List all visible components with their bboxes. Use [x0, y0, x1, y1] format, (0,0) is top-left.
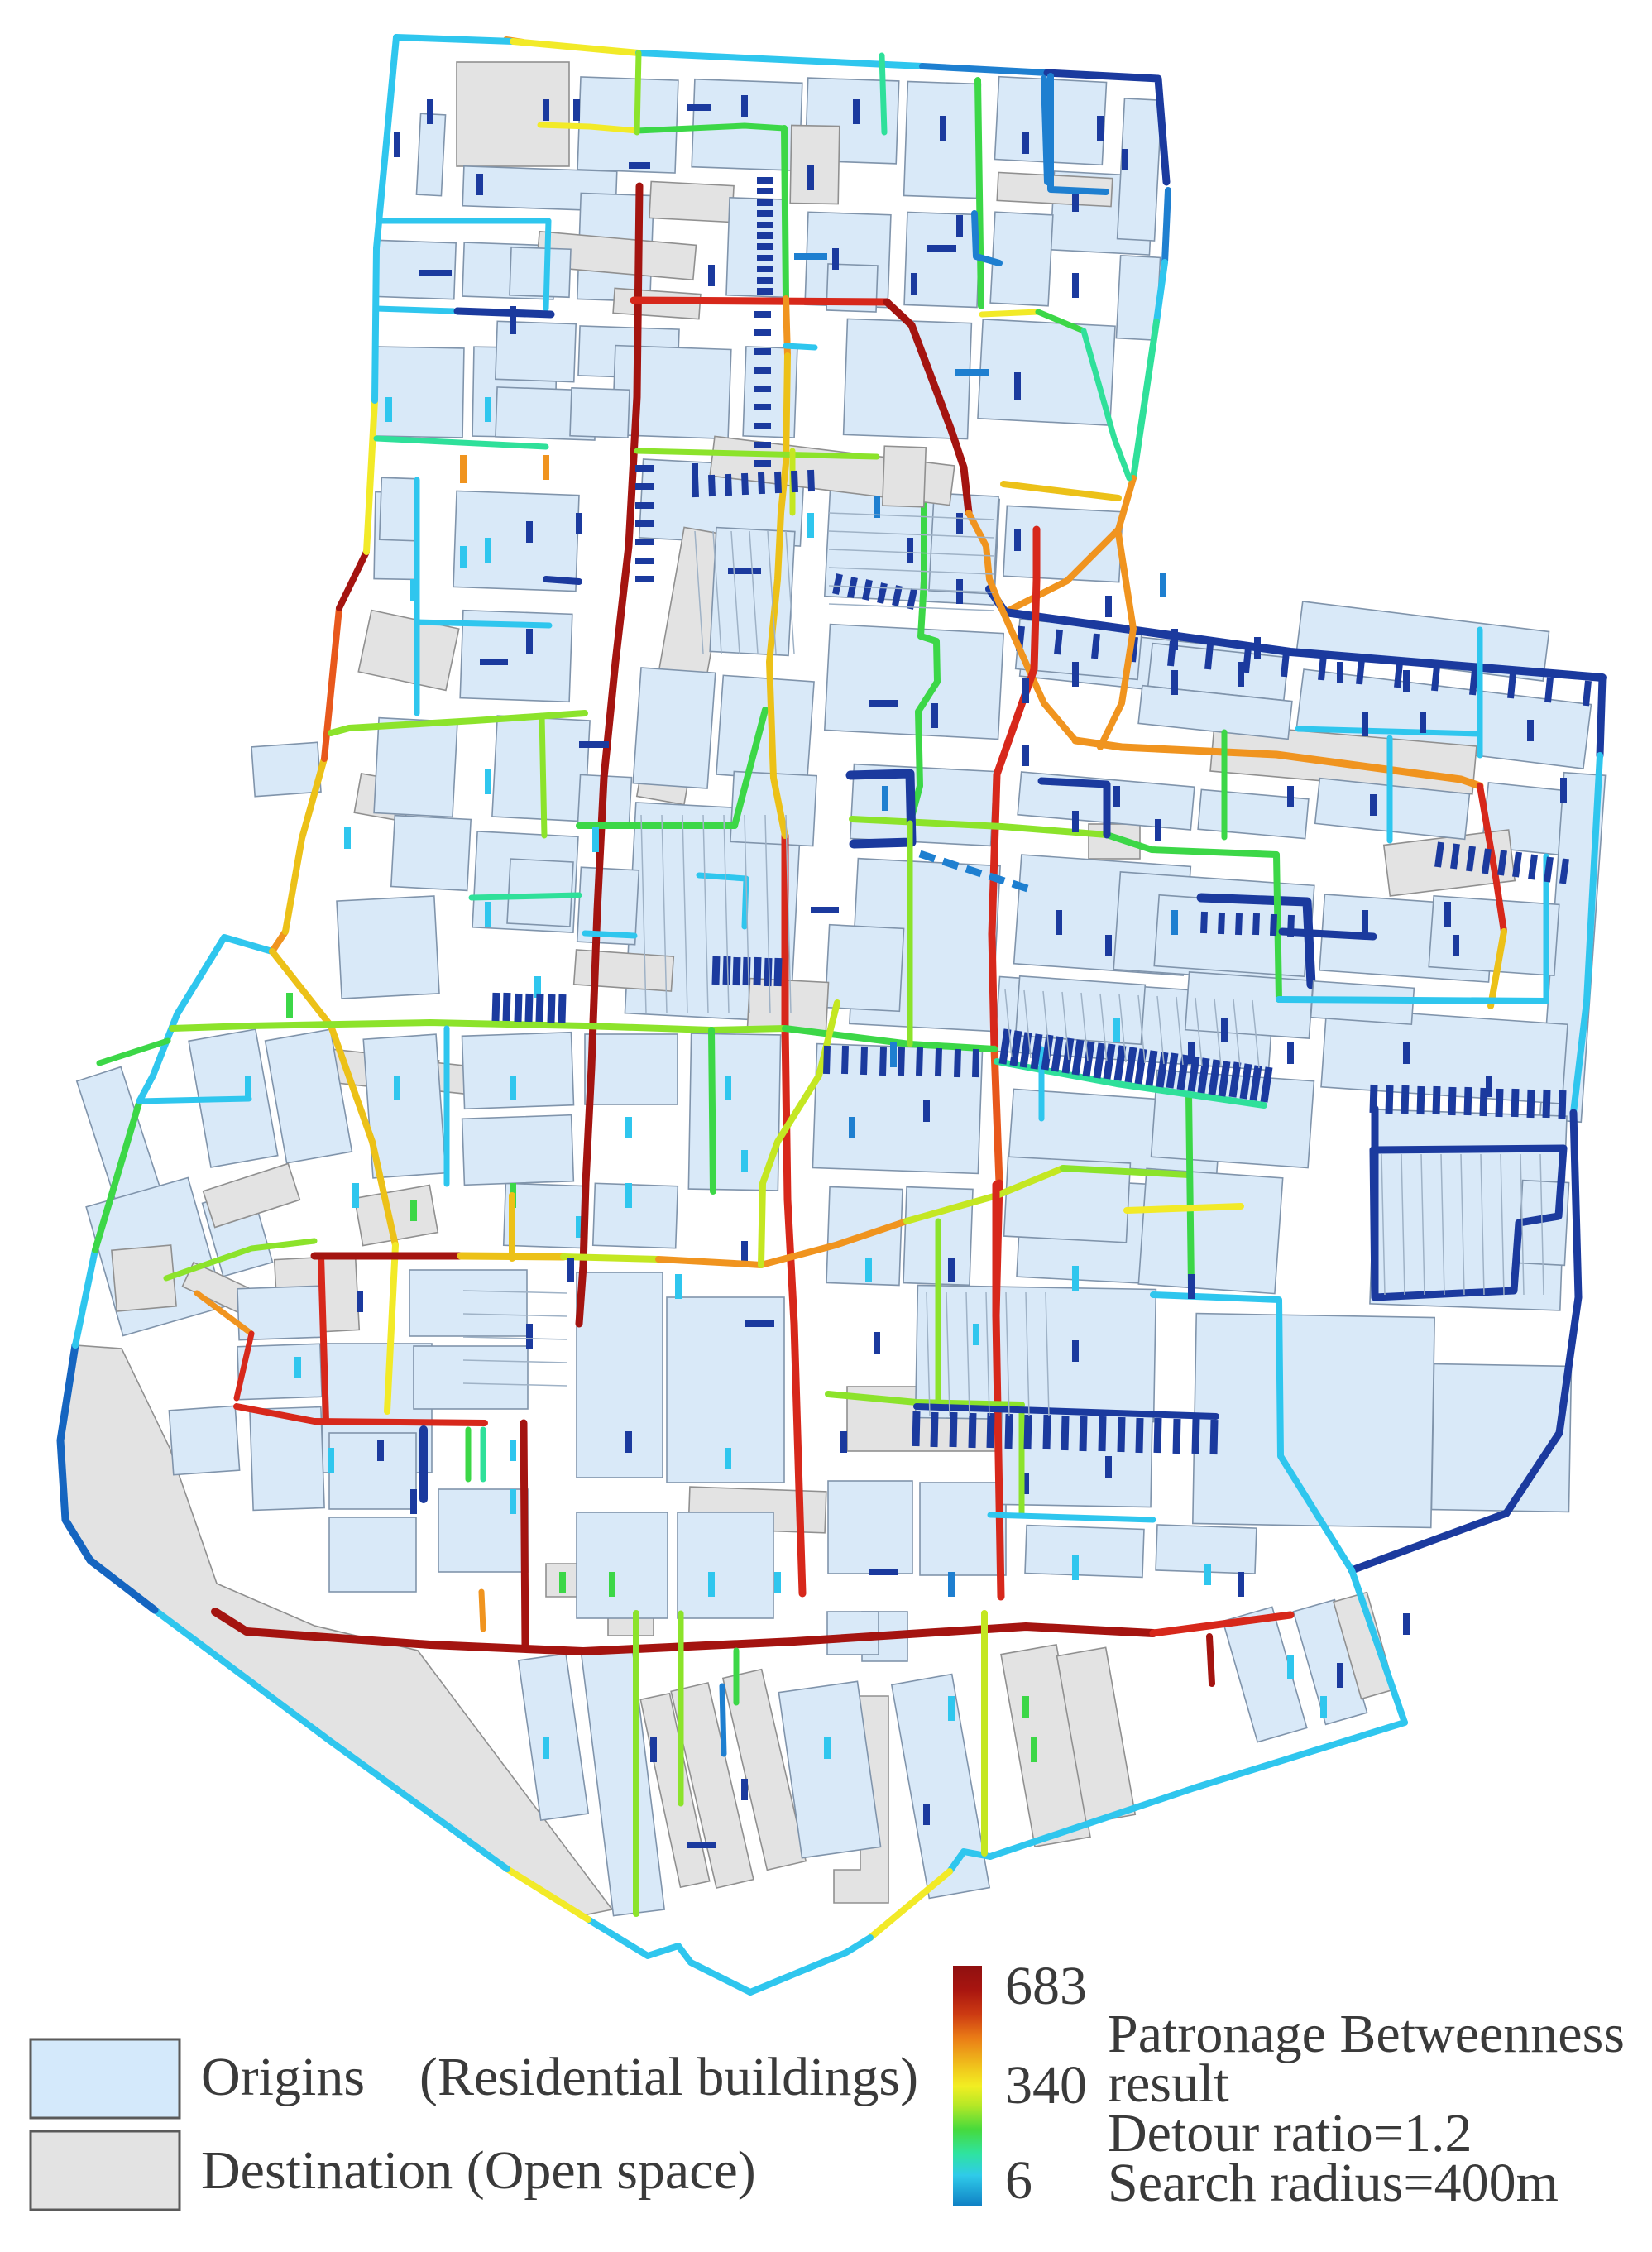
svg-text:Origins (Residential buildings: Origins (Residential buildings): [201, 2047, 918, 2107]
svg-text:6: 6: [1005, 2150, 1032, 2211]
svg-text:340: 340: [1005, 2055, 1087, 2115]
svg-text:Destination (Open space): Destination (Open space): [201, 2140, 756, 2201]
svg-text:683: 683: [1005, 1956, 1087, 2016]
svg-text:Search radius=400m: Search radius=400m: [1108, 2153, 1559, 2213]
